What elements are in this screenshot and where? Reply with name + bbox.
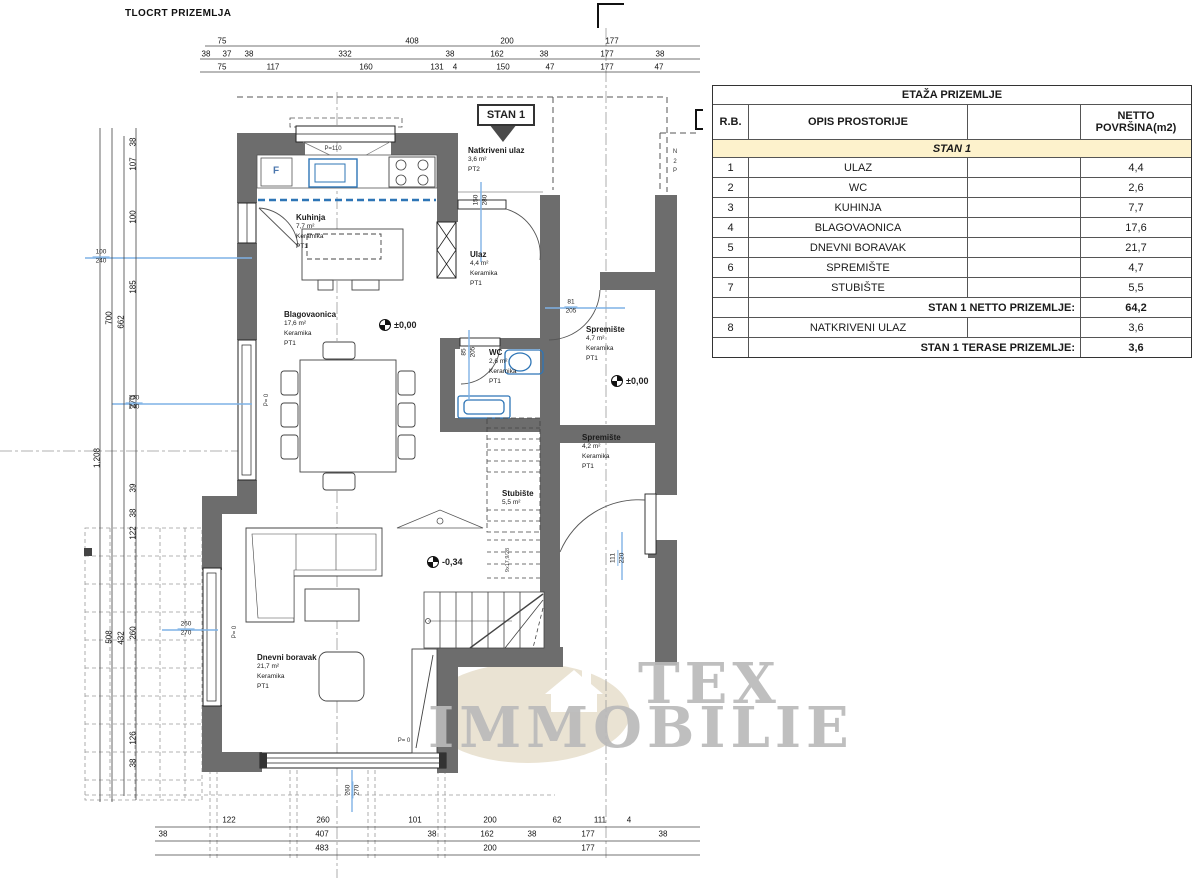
table-row: 4 BLAGOVAONICA 17,6 <box>713 217 1191 237</box>
stan1-label-box: STAN 1 <box>477 104 535 126</box>
kitchen-counter <box>257 155 437 200</box>
table-header-row: R.B. OPIS PROSTORIJE NETTO POVRŠINA(m2) <box>713 104 1191 139</box>
table-row-natkriveni: 8 NATKRIVENI ULAZ 3,6 <box>713 317 1191 337</box>
staircase <box>424 418 544 648</box>
wc-fixtures <box>458 350 543 418</box>
table-title: ETAŽA PRIZEMLJE <box>713 86 1191 104</box>
sofa <box>246 528 437 753</box>
table-row: 7 STUBIŠTE 5,5 <box>713 277 1191 297</box>
kitchen-island <box>302 229 403 290</box>
canopy <box>397 510 483 528</box>
table-subtotal-netto: STAN 1 NETTO PRIZEMLJE: 64,2 <box>713 297 1191 317</box>
table-row: 5 DNEVNI BORAVAK 21,7 <box>713 237 1191 257</box>
col-header-blank <box>967 105 1080 139</box>
table-row: 2 WC 2,6 <box>713 177 1191 197</box>
entrance-arrow-icon <box>489 124 517 142</box>
plan-title: TLOCRT PRIZEMLJA <box>125 8 231 19</box>
table-section-stan1: STAN 1 <box>713 140 1191 157</box>
corner-bracket-icon <box>598 4 703 129</box>
table-row: 1 ULAZ 4,4 <box>713 157 1191 177</box>
floor-plan-page: TLOCRT PRIZEMLJA STAN 1 Kuhinja 7,7 m² K… <box>0 0 1200 881</box>
shaft-icon <box>437 222 456 278</box>
col-header-opis: OPIS PROSTORIJE <box>748 105 967 139</box>
column-marker <box>84 548 92 556</box>
table-body: 1 ULAZ 4,4 2 WC 2,6 3 KUHINJA 7,7 4 BLAG <box>713 157 1191 297</box>
dining-table <box>281 342 415 490</box>
table-subtotal-terase: STAN 1 TERASE PRIZEMLJE: 3,6 <box>713 337 1191 357</box>
col-header-rb: R.B. <box>713 105 748 139</box>
area-table: ETAŽA PRIZEMLJE R.B. OPIS PROSTORIJE NET… <box>712 85 1192 358</box>
table-row: 3 KUHINJA 7,7 <box>713 197 1191 217</box>
col-header-netto: NETTO POVRŠINA(m2) <box>1080 105 1191 139</box>
table-row: 6 SPREMIŠTE 4,7 <box>713 257 1191 277</box>
